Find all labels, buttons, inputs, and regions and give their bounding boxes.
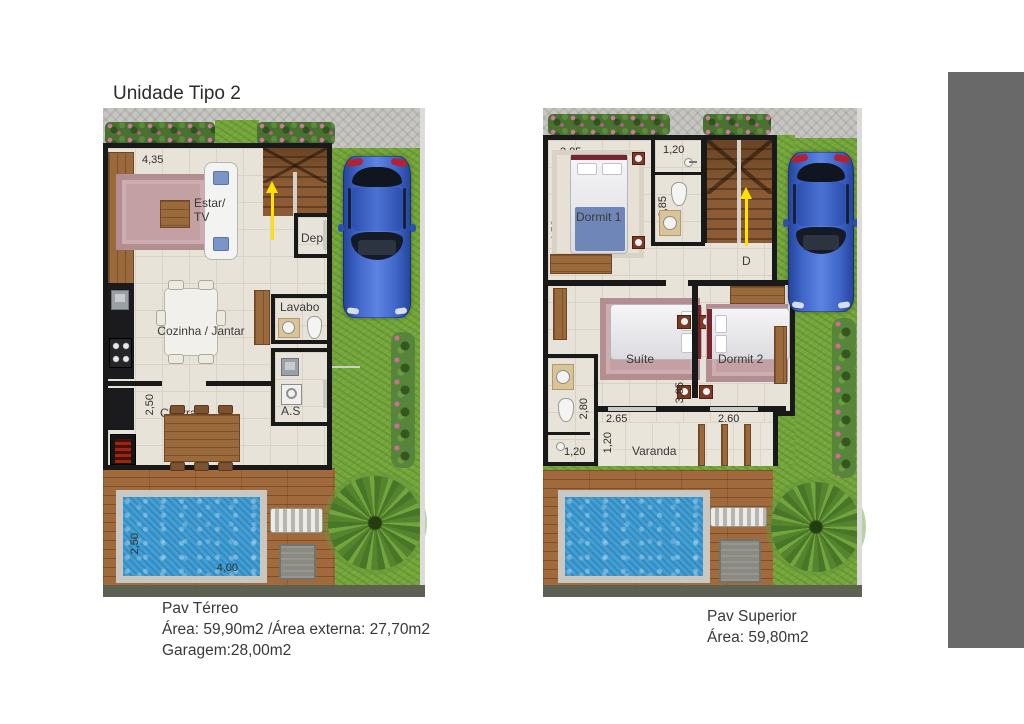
ground-caption-areas: Área: 59,90m2 /Área externa: 27,70m2 (162, 619, 430, 640)
lavabo-sink (282, 321, 295, 334)
coffee-table (160, 200, 190, 228)
varanda-pillar (744, 424, 751, 466)
floorplan-sheet: Unidade Tipo 2 2,50 4,00 4,35 6,60 (0, 0, 1024, 724)
upper-floor-plan: 2,85 4,50 Dormit 1 1,20 2,85 (543, 108, 862, 597)
car-tail-light (346, 157, 363, 167)
bed-headboard (571, 155, 627, 160)
as-label: A.S (281, 404, 300, 418)
dormit2-label: Dormit 2 (718, 352, 763, 366)
house-outline: 2,85 4,50 Dormit 1 1,20 2,85 (543, 135, 795, 466)
churrasq-table (164, 414, 240, 462)
car-roof (797, 182, 846, 225)
shower-partition (655, 172, 701, 175)
churrasq-chair (218, 462, 233, 471)
nightstand-lamp (681, 318, 688, 325)
varanda-pillar (698, 424, 705, 466)
sliding-door (608, 407, 656, 411)
car-side-window (348, 188, 351, 229)
pool: 2,50 4,00 (116, 490, 267, 583)
churrasq-chair (170, 405, 185, 414)
wall-segment (692, 286, 698, 398)
car-tail-light (390, 157, 407, 167)
suite-height-dim: 3,85 (674, 382, 686, 403)
pool-height-dim: 2,50 (129, 533, 141, 554)
car-headlight (394, 307, 407, 315)
churrasq-chair (194, 462, 209, 471)
ground-caption-name: Pav Térreo (162, 598, 430, 619)
palm-tree (328, 476, 422, 570)
dining-chair (168, 280, 184, 290)
stairs-up-arrow (271, 192, 274, 240)
hedge-right (703, 114, 771, 135)
nightstand (677, 315, 691, 329)
dormit1-bed (570, 154, 628, 254)
palm-tree (771, 482, 861, 572)
dining-chair (198, 354, 214, 364)
flower-bed (391, 332, 415, 468)
dormit1-label: Dormit 1 (576, 210, 621, 224)
churrasq-chair (194, 405, 209, 414)
varanda-label: Varanda (632, 444, 676, 458)
bed-pillow (577, 163, 597, 175)
car (343, 156, 411, 318)
upper-floor-caption: Pav Superior Área: 59,80m2 (707, 606, 809, 648)
nightstand-lamp (703, 388, 710, 395)
side-fence (420, 108, 425, 597)
sheet-title: Unidade Tipo 2 (113, 83, 241, 105)
nightstand-lamp (635, 155, 642, 162)
dormit1-wardrobe (550, 254, 612, 274)
churrasq-counter (108, 388, 134, 430)
stairs-up-arrow (745, 198, 748, 246)
car-cockpit (803, 235, 840, 249)
dining-chair (198, 280, 214, 290)
wall-segment (206, 381, 271, 386)
as-room: A.S (271, 348, 327, 426)
toilet (671, 182, 687, 206)
lavabo-label: Lavabo (280, 300, 319, 314)
sofa-pillow (213, 171, 229, 185)
lavabo-room: Lavabo (271, 294, 327, 344)
suite-bath-height-dim: 2,80 (578, 398, 590, 419)
ground-floor-caption: Pav Térreo Área: 59,90m2 /Área externa: … (162, 598, 430, 661)
ground-floor-plan: 2,50 4,00 4,35 6,60 Estar/ TV (103, 108, 425, 597)
stair-divider (293, 172, 297, 216)
varanda-depth-dim: 1,20 (602, 432, 614, 453)
lounge-chair (710, 507, 767, 527)
sink (556, 370, 570, 384)
dining-table (164, 288, 218, 356)
stove (109, 338, 132, 368)
side-fence (857, 108, 862, 597)
bed-pillow (602, 163, 622, 175)
as-door (323, 380, 327, 408)
hedge-left (105, 122, 215, 145)
car-rear-window (797, 163, 846, 182)
car-headlight (838, 302, 851, 310)
sink (663, 216, 677, 230)
bed-pillow (715, 315, 727, 333)
nightstand (699, 385, 713, 399)
stair-direction-label: D (742, 254, 751, 268)
car-cockpit (358, 240, 396, 255)
house-notch-bottom (773, 411, 795, 466)
car-headlight (792, 302, 805, 310)
washing-machine (281, 384, 302, 405)
car-tail-light (833, 153, 850, 163)
dining-chair (168, 354, 184, 364)
bed-pillow (715, 335, 727, 353)
suite-wardrobe (553, 288, 567, 340)
car-mirror (338, 224, 344, 232)
dormit2-desk (774, 326, 787, 384)
car-side-window (403, 188, 406, 229)
shower-partition (548, 432, 590, 435)
sofa-pillow (213, 237, 229, 251)
site-boundary (543, 585, 862, 597)
churrasqueira-grill (110, 434, 136, 465)
grill-fire (115, 439, 131, 463)
ground-caption-garage: Garagem:28,00m2 (162, 640, 430, 661)
house-outline: 4,35 6,60 Estar/ TV Dep (103, 143, 332, 470)
kitchen-sink (111, 290, 129, 310)
hedge-right (257, 122, 335, 145)
dep-label: Dep (301, 231, 323, 245)
sliding-door (710, 407, 758, 411)
cozinha-label: Cozinha / Jantar (136, 324, 266, 338)
gate-line (332, 366, 360, 368)
lounge-chair (270, 508, 323, 533)
nightstand (632, 236, 645, 249)
washer-door (286, 388, 297, 399)
churrasq-chair (218, 405, 233, 414)
bathroom-width-dim: 1,20 (663, 144, 684, 156)
estar-label-line1: Estar/ (194, 196, 225, 210)
toilet (558, 398, 574, 422)
churrasq-chair (170, 462, 185, 471)
car-mirror (783, 219, 789, 227)
wall-segment (108, 381, 162, 386)
car-tail-light (791, 153, 808, 163)
upper-caption-name: Pav Superior (707, 606, 809, 627)
kitchen-cabinet (254, 290, 270, 345)
bathroom-room: 1,20 2,85 (651, 140, 705, 246)
suite-label: Suíte (626, 352, 654, 366)
laundry-tank (281, 358, 299, 376)
car-rear-window (352, 167, 402, 186)
dormit2-wardrobe (730, 286, 785, 304)
pool-width-dim: 4,00 (217, 562, 238, 574)
stone-paver (719, 539, 761, 583)
nightstand (632, 152, 645, 165)
suite-bath-width-dim: 1,20 (564, 446, 585, 458)
dep-door (323, 220, 327, 250)
varanda-pillar (721, 424, 728, 466)
lavabo-toilet (307, 316, 322, 339)
churrasq-height-dim: 2,50 (144, 394, 156, 415)
car-roof (352, 187, 402, 231)
car-headlight (347, 307, 360, 315)
stone-paver (279, 544, 316, 580)
estar-label-line2: TV (194, 210, 209, 224)
flower-bed (832, 318, 856, 478)
estar-width-dim: 4,35 (142, 154, 163, 166)
car (788, 152, 854, 312)
suite-bathroom-room: 2,80 1,20 (548, 354, 598, 466)
nightstand-lamp (635, 239, 642, 246)
car-mirror (410, 224, 416, 232)
car-side-window (793, 184, 796, 224)
bed-headboard (707, 309, 712, 359)
gray-sidebar-band (948, 72, 1024, 648)
wall-segment (548, 280, 666, 286)
shower-arm (689, 161, 697, 163)
suite-bed (610, 304, 702, 360)
pool (558, 490, 710, 583)
upper-caption-area: Área: 59,80m2 (707, 627, 809, 648)
car-side-window (846, 184, 849, 224)
site-boundary (103, 585, 425, 597)
sink-basin (115, 294, 125, 302)
tank-basin (285, 362, 295, 370)
hedge-left (548, 114, 670, 135)
